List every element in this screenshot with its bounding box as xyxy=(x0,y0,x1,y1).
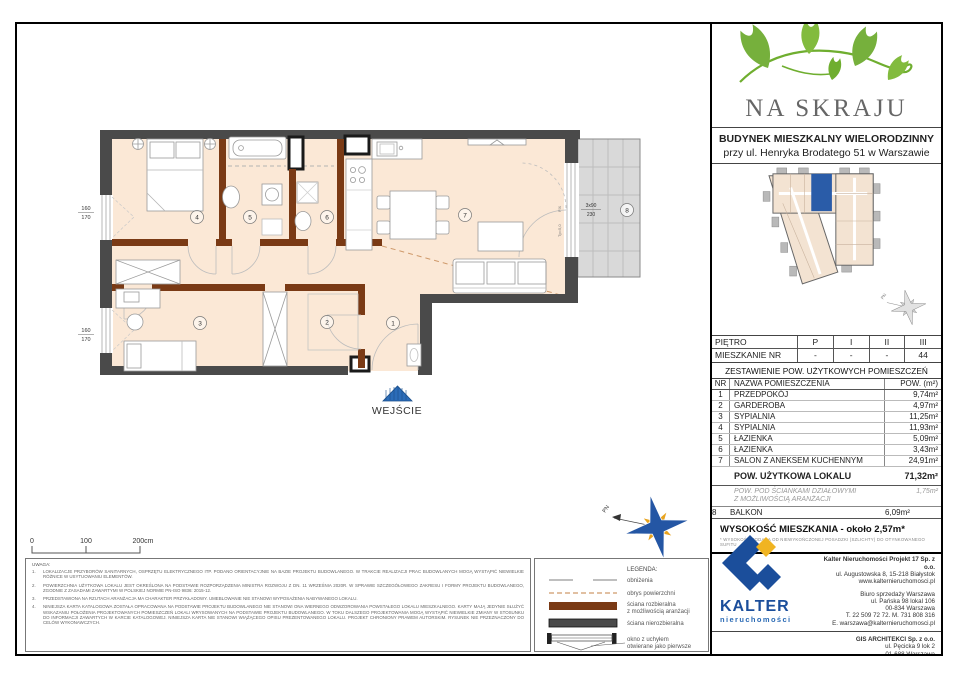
svg-text:WEJŚCIE: WEJŚCIE xyxy=(372,404,422,417)
svg-text:2: 2 xyxy=(325,320,329,327)
fixed-wall-symbol xyxy=(549,619,617,627)
project-name: NA SKRAJU xyxy=(712,95,941,123)
window-symbol xyxy=(547,633,625,650)
svg-text:otwierane jako pierwsze: otwierane jako pierwsze xyxy=(627,644,692,650)
info-panel: NA SKRAJU BUDYNEK MIESZKALNY WIELORODZIN… xyxy=(710,22,943,656)
svg-text:6: 6 xyxy=(325,215,329,222)
svg-text:170: 170 xyxy=(81,337,90,343)
svg-text:LEGENDA:: LEGENDA: xyxy=(627,567,658,573)
table-row: 1PRZEDPOKÓJ9,74m² xyxy=(712,390,941,401)
svg-text:KALTER: KALTER xyxy=(720,598,790,615)
svg-text:FIX: FIX xyxy=(557,205,562,212)
rooms-table-title: ZESTAWIENIE POW. UŻYTKOWYCH POMIESZCZEŃ xyxy=(712,363,941,379)
svg-text:160: 160 xyxy=(81,206,90,212)
floor-p: P xyxy=(798,336,834,349)
developer-email[interactable]: E. warszawa@kalternieruchomosci.pl xyxy=(814,620,935,627)
table-row: 3SYPIALNIA11,25m² xyxy=(712,412,941,423)
legend-drawing: LEGENDA: obniżenia obrys powierzchni ści… xyxy=(535,559,708,651)
unit-1: - xyxy=(834,349,870,362)
floor-1: I xyxy=(834,336,870,349)
note-item: 3.PRZEDSTAWIONA NA RZUTACH ARANŻACJA MA … xyxy=(32,596,524,601)
entrance-arrow-icon xyxy=(383,386,412,401)
svg-text:100: 100 xyxy=(80,538,92,545)
svg-text:4: 4 xyxy=(195,215,199,222)
table-row: 7SALON Z ANEKSEM KUCHENNYM24,91m² xyxy=(712,456,941,467)
floor-table: PIĘTRO P I II III MIESZKANIE NR - - - 44 xyxy=(712,336,941,363)
highlighted-unit xyxy=(811,174,832,211)
table-row: 4SYPIALNIA11,93m² xyxy=(712,423,941,434)
site-plan-drawing: PN xyxy=(712,164,941,334)
svg-text:obrys powierzchni: obrys powierzchni xyxy=(627,591,675,597)
svg-text:8: 8 xyxy=(625,208,629,215)
svg-text:ściana rozbieralna: ściana rozbieralna xyxy=(627,602,676,608)
svg-text:230: 230 xyxy=(587,212,596,218)
table-row: 5ŁAZIENKA5,09m² xyxy=(712,434,941,445)
note-item: 2.POWIERZCHNIA UŻYTKOWA LOKALU JEST OKRE… xyxy=(32,583,524,594)
entrance-marker: WEJŚCIE xyxy=(372,386,422,417)
svg-text:170: 170 xyxy=(81,215,90,221)
svg-text:PN: PN xyxy=(602,504,611,514)
balcony-row: 8 BALKON 6,09m² xyxy=(712,507,941,519)
unit-number: 44 xyxy=(905,349,941,362)
total-area-value: 71,32m² xyxy=(904,471,938,481)
kalter-logo-icon: KALTER nieruchomości xyxy=(718,531,810,627)
site-compass-icon: PN xyxy=(880,286,930,328)
svg-text:z możliwością aranżacji: z możliwością aranżacji xyxy=(627,609,690,615)
partition-area-value: 1,75m² xyxy=(916,488,938,504)
building-info: BUDYNEK MIESZKALNY WIELORODZINNY przy ul… xyxy=(712,128,941,164)
developer-block: KALTER nieruchomości Kalter Nieruchomośc… xyxy=(712,554,941,632)
svg-text:ściana nierozbieralna: ściana nierozbieralna xyxy=(627,621,684,627)
rooms-table: NR NAZWA POMIESZCZENIA POW. (m²) 1PRZEDP… xyxy=(712,379,941,519)
unit-p: - xyxy=(798,349,834,362)
floor-2: II xyxy=(870,336,906,349)
svg-text:Tp=5,0: Tp=5,0 xyxy=(557,224,562,237)
catalog-sheet: { "branding": { "logo_title": "NA SKRAJU… xyxy=(0,0,960,678)
architect-block: GIS ARCHITEKCI Sp. z o.o. ul. Pęcicka 9 … xyxy=(712,632,941,656)
total-area-row: POW. UŻYTKOWA LOKALU71,32m² xyxy=(712,467,941,486)
svg-text:nieruchomości: nieruchomości xyxy=(720,615,792,624)
svg-text:1: 1 xyxy=(391,321,395,328)
scale-bar: 0 100 200cm xyxy=(30,538,154,553)
note-item: 4.NINIEJSZA KARTA KATALOGOWA ZOSTAŁA OPR… xyxy=(32,604,524,625)
svg-text:5: 5 xyxy=(248,215,252,222)
svg-text:3x90: 3x90 xyxy=(586,203,597,209)
svg-text:200cm: 200cm xyxy=(132,538,153,545)
svg-text:obniżenia: obniżenia xyxy=(627,578,653,584)
floor-3: III xyxy=(905,336,941,349)
building-address: przy ul. Henryka Brodatego 51 w Warszawi… xyxy=(712,146,941,160)
svg-text:PN: PN xyxy=(880,292,888,300)
rooms-table-header: NR NAZWA POMIESZCZENIA POW. (m²) xyxy=(712,379,941,390)
legend-box: LEGENDA: obniżenia obrys powierzchni ści… xyxy=(534,558,709,652)
svg-text:160: 160 xyxy=(81,328,90,334)
notes-box: UWAGA: 1.LOKALIZACJE PRZYBORÓW SANITARNY… xyxy=(25,558,531,652)
developer-website[interactable]: www.kalternieruchomosci.pl xyxy=(814,578,935,585)
table-row: 6ŁAZIENKA3,43m² xyxy=(712,445,941,456)
project-logo: NA SKRAJU xyxy=(712,24,941,128)
svg-text:0: 0 xyxy=(30,538,34,545)
floor-label: PIĘTRO xyxy=(712,336,798,349)
site-plan: PN xyxy=(712,164,941,336)
unit-2: - xyxy=(870,349,906,362)
svg-text:7: 7 xyxy=(463,213,467,220)
developer-address: Kalter Nieruchomości Projekt 17 Sp. z o.… xyxy=(814,556,935,627)
table-row: 2GARDEROBA4,97m² xyxy=(712,401,941,412)
svg-text:3: 3 xyxy=(198,321,202,328)
svg-text:okno z uchyłem: okno z uchyłem xyxy=(627,637,669,643)
unit-label: MIESZKANIE NR xyxy=(712,349,798,362)
ivy-logo-icon xyxy=(712,24,941,98)
note-item: 1.LOKALIZACJE PRZYBORÓW SANITARNYCH, OSP… xyxy=(32,569,524,580)
partition-area-row: POW. POD ŚCIANKAMI DZIAŁOWYMIZ MOŻLIWOŚC… xyxy=(712,486,941,507)
building-type: BUDYNEK MIESZKALNY WIELORODZINNY xyxy=(712,132,941,146)
removable-wall-symbol xyxy=(549,602,617,610)
compass-icon: PN xyxy=(602,488,696,566)
